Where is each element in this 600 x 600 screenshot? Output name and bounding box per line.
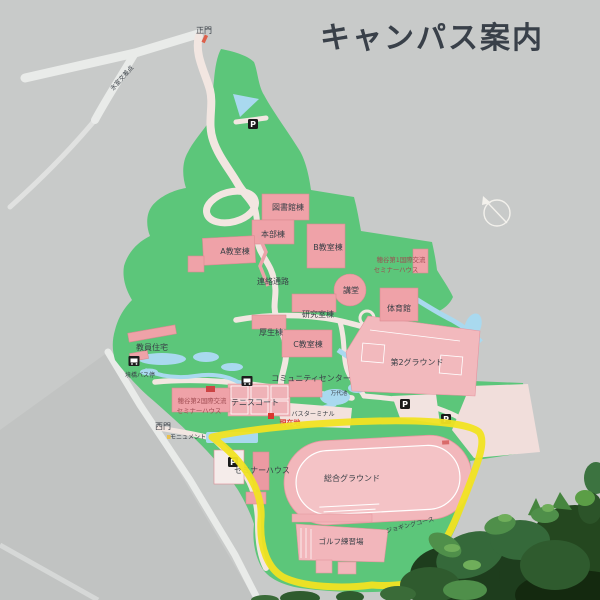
campus-map: P P P P 正門 氷室交差点 図書館棟 本部棟 A教室棟 B教室棟 連絡通路…	[0, 0, 600, 600]
track-mark	[442, 440, 449, 444]
label-monument: モニュメント	[170, 434, 206, 441]
leaf	[498, 514, 512, 522]
label-main-ground: 総合グラウンド	[324, 473, 380, 483]
seminar2-marker	[206, 386, 215, 392]
leaf	[443, 580, 487, 600]
label-ground2: 第2グラウンド	[390, 357, 443, 367]
current-location-marker	[268, 413, 274, 419]
parking-icon: P	[400, 399, 410, 409]
label-seminar2-line2: セミナーハウス	[177, 407, 222, 415]
pond-west2	[193, 352, 219, 362]
leaf	[444, 544, 460, 552]
golf-annex2	[338, 562, 356, 574]
label-welfare: 厚生棟	[259, 327, 283, 337]
leaf	[520, 540, 590, 590]
label-classroom-a: A教室棟	[220, 246, 249, 256]
label-seminar1-line1: 穂谷第1国際交流	[377, 255, 426, 264]
building-strip	[292, 514, 372, 522]
label-tennis: テニスコート	[231, 398, 279, 407]
label-faculty-housing: 教員住宅	[136, 342, 168, 352]
label-bus-terminal: バスターミナル	[291, 410, 334, 418]
golf-annex1	[316, 560, 332, 573]
bus-stop-icon	[129, 356, 140, 366]
building-classroom-a-annex	[188, 256, 204, 272]
label-community-center: コミュニティセンター	[271, 374, 351, 383]
svg-text:P: P	[250, 120, 256, 129]
pond-west3	[221, 363, 243, 371]
label-golf: ゴルフ練習場	[319, 536, 364, 546]
label-classroom-b: B教室棟	[313, 242, 343, 252]
leaf	[463, 560, 481, 570]
svg-text:P: P	[402, 400, 408, 409]
label-bus-stop: 境橋バス停	[125, 371, 155, 379]
leaf	[542, 504, 554, 512]
parking-icon: P	[248, 119, 258, 129]
label-west-gate: 西門	[155, 422, 171, 431]
label-headquarters: 本部棟	[261, 229, 285, 239]
label-auditorium: 講堂	[343, 285, 359, 295]
sign-title: キャンパス案内	[320, 21, 544, 56]
label-gymnasium: 体育館	[387, 303, 411, 313]
label-seminar2-line1: 穂谷第2国際交流	[178, 396, 227, 405]
leaf	[575, 490, 595, 506]
label-corridor: 連絡通路	[257, 276, 289, 286]
bus-stop-icon	[242, 376, 253, 386]
label-mandai-pond: 万代池	[331, 389, 348, 397]
label-library: 図書館棟	[272, 202, 304, 212]
building-welfare	[252, 315, 286, 329]
label-seminar1-line2: セミナーハウス	[374, 266, 419, 274]
campus-map-sign-photo: P P P P 正門 氷室交差点 図書館棟 本部棟 A教室棟 B教室棟 連絡通路…	[0, 0, 600, 600]
label-classroom-c: C教室棟	[293, 339, 323, 349]
label-main-gate: 正門	[196, 26, 212, 35]
label-research: 研究室棟	[302, 309, 334, 319]
